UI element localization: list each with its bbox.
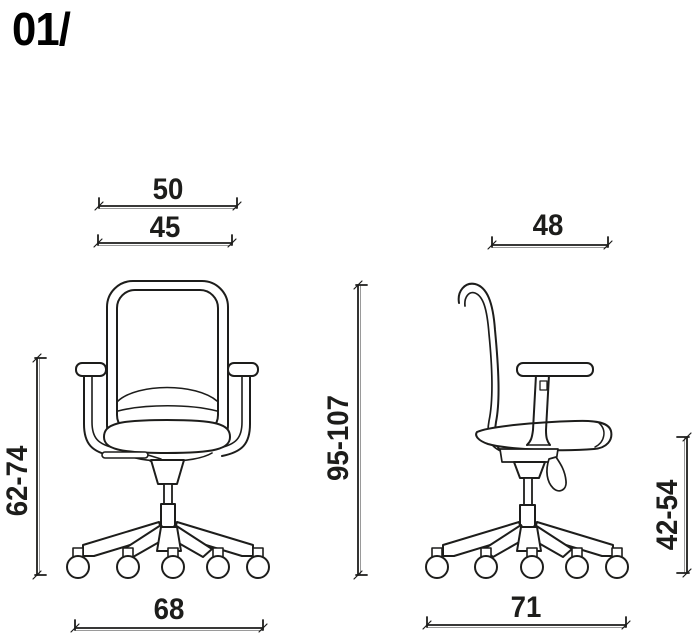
side-base <box>426 522 628 578</box>
dim-label-front-base-width: 68 <box>154 595 185 625</box>
dim-label-front-backrest-top-width: 50 <box>153 175 184 205</box>
dim-label-front-armrest-height: 62-74 <box>3 446 33 517</box>
dim-line-side-overall-height <box>354 281 367 579</box>
front-gas-lift <box>151 460 184 527</box>
front-casters <box>67 556 269 578</box>
dim-label-front-backrest-width: 45 <box>150 213 181 243</box>
front-chair-drawing <box>67 281 269 578</box>
side-chair-drawing <box>426 284 628 578</box>
front-base <box>67 522 269 578</box>
dim-label-side-overall-height: 95-107 <box>324 395 354 481</box>
side-casters <box>426 556 628 578</box>
dim-label-side-seat-height: 42-54 <box>653 480 683 551</box>
spec-sheet: 01/ 50 45 62-74 68 48 95-107 42-54 71 <box>0 0 699 635</box>
side-gas-lift <box>514 462 545 527</box>
dim-label-side-backrest-width: 48 <box>533 211 564 241</box>
dim-line-front-armrest-height <box>33 354 46 579</box>
page-title: 01/ <box>12 2 70 56</box>
dim-label-side-base-depth: 71 <box>511 593 542 623</box>
chair-technical-drawing <box>0 0 699 635</box>
